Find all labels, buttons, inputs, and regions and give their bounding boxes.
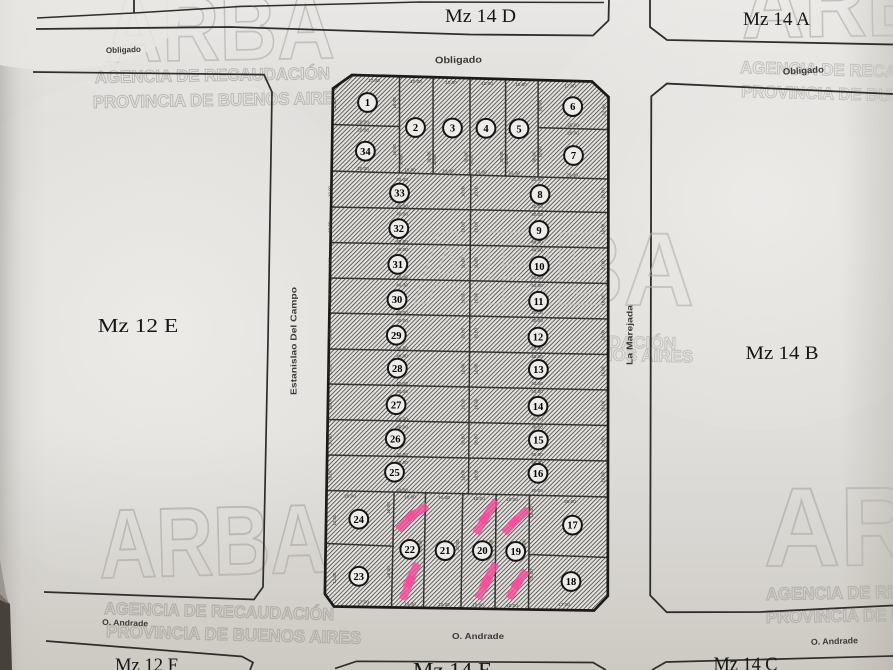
svg-text:17.00: 17.00	[564, 83, 576, 88]
svg-text:10.00: 10.00	[474, 398, 479, 410]
svg-text:10.00: 10.00	[461, 185, 466, 197]
svg-text:22.00: 22.00	[602, 104, 607, 116]
svg-text:10.00: 10.00	[472, 603, 484, 608]
svg-text:10.00: 10.00	[328, 363, 333, 375]
svg-text:33: 33	[394, 189, 405, 200]
svg-text:40.00: 40.00	[531, 389, 543, 394]
svg-text:40.00: 40.00	[396, 239, 408, 244]
svg-text:40.00: 40.00	[396, 204, 408, 209]
svg-text:40.00: 40.00	[396, 212, 408, 217]
svg-text:15.00: 15.00	[538, 146, 543, 158]
svg-text:10.00: 10.00	[461, 434, 466, 446]
svg-text:25.00: 25.00	[386, 566, 391, 578]
svg-text:10.00: 10.00	[601, 259, 606, 271]
svg-text:Obligado: Obligado	[106, 45, 141, 55]
svg-text:40.00: 40.00	[531, 417, 543, 422]
svg-text:20.00: 20.00	[344, 494, 356, 499]
svg-text:10.00: 10.00	[461, 398, 466, 410]
svg-text:20.00: 20.00	[357, 127, 369, 132]
svg-text:10.00: 10.00	[445, 80, 457, 85]
svg-text:1: 1	[365, 98, 370, 109]
svg-text:11: 11	[534, 297, 544, 308]
svg-text:15.00: 15.00	[386, 502, 391, 514]
svg-text:30.00: 30.00	[427, 151, 432, 163]
svg-text:10.00: 10.00	[328, 221, 333, 233]
svg-text:10.00: 10.00	[461, 327, 466, 339]
svg-text:40.00: 40.00	[531, 247, 543, 252]
svg-text:20.00: 20.00	[566, 172, 578, 177]
svg-text:30.00: 30.00	[532, 151, 537, 163]
svg-text:40.00: 40.00	[396, 346, 408, 351]
svg-text:10.00: 10.00	[508, 171, 520, 176]
svg-text:23: 23	[354, 572, 365, 583]
svg-text:ARBA: ARBA	[763, 462, 893, 590]
svg-text:40.00: 40.00	[531, 318, 543, 323]
svg-text:Mz 12 F: Mz 12 F	[115, 656, 178, 670]
svg-text:10.00: 10.00	[601, 365, 606, 377]
svg-text:20.00: 20.00	[567, 123, 579, 128]
svg-text:10.00: 10.00	[442, 169, 454, 174]
svg-text:17.00: 17.00	[368, 78, 380, 83]
svg-text:40.00: 40.00	[396, 354, 408, 359]
svg-text:10.00: 10.00	[328, 257, 333, 269]
svg-text:O. Andrade: O. Andrade	[452, 631, 504, 641]
svg-text:10.00: 10.00	[404, 601, 416, 606]
svg-text:13: 13	[533, 365, 544, 376]
svg-text:40.00: 40.00	[396, 416, 408, 421]
svg-text:5: 5	[516, 124, 521, 135]
svg-text:O. Andrade: O. Andrade	[102, 618, 149, 629]
svg-text:10.00: 10.00	[328, 327, 333, 339]
svg-text:10.00: 10.00	[601, 294, 606, 306]
svg-text:40.00: 40.00	[396, 177, 408, 182]
svg-text:40.00: 40.00	[396, 424, 408, 429]
svg-text:10.00: 10.00	[461, 292, 466, 304]
svg-text:9: 9	[536, 226, 541, 237]
svg-text:10.00: 10.00	[506, 603, 518, 608]
svg-text:10.00: 10.00	[601, 223, 606, 235]
svg-text:10.00: 10.00	[474, 257, 479, 269]
svg-text:30.00: 30.00	[504, 154, 509, 166]
svg-text:30.00: 30.00	[399, 154, 404, 166]
svg-text:Mz 14 D: Mz 14 D	[445, 7, 516, 27]
svg-text:10.00: 10.00	[515, 82, 527, 87]
svg-text:40.00: 40.00	[396, 381, 408, 386]
svg-text:10.00: 10.00	[474, 292, 479, 304]
svg-text:10.00: 10.00	[404, 494, 416, 499]
svg-text:10.00: 10.00	[410, 79, 422, 84]
svg-text:10.00: 10.00	[473, 496, 485, 501]
svg-text:40.00: 40.00	[531, 488, 543, 493]
svg-text:30: 30	[392, 295, 403, 306]
svg-text:21: 21	[440, 546, 451, 557]
svg-text:10.00: 10.00	[404, 168, 416, 173]
svg-text:29: 29	[391, 331, 402, 342]
svg-text:O. Andrade: O. Andrade	[811, 635, 859, 647]
svg-text:Mz 14 B: Mz 14 B	[746, 343, 819, 364]
svg-text:32: 32	[394, 224, 405, 235]
svg-text:22.00: 22.00	[332, 99, 337, 111]
svg-text:40.00: 40.00	[396, 318, 408, 323]
svg-text:20.00: 20.00	[567, 131, 579, 136]
svg-text:ARBA: ARBA	[98, 483, 329, 599]
svg-text:Mz 14 E: Mz 14 E	[413, 658, 492, 670]
svg-text:10.00: 10.00	[475, 170, 487, 175]
svg-text:40.00: 40.00	[531, 283, 543, 288]
svg-text:40.00: 40.00	[531, 381, 543, 386]
svg-text:12.00: 12.00	[332, 572, 337, 584]
svg-text:22: 22	[405, 545, 416, 556]
svg-text:10.00: 10.00	[461, 221, 466, 233]
svg-text:40.00: 40.00	[531, 212, 543, 217]
svg-text:10.00: 10.00	[438, 602, 450, 607]
svg-text:18: 18	[566, 577, 577, 588]
svg-text:15.00: 15.00	[392, 97, 397, 109]
svg-text:34: 34	[360, 147, 371, 158]
svg-text:4: 4	[483, 124, 489, 135]
svg-text:17: 17	[567, 521, 578, 532]
svg-text:15.00: 15.00	[538, 100, 543, 112]
svg-text:40.00: 40.00	[531, 452, 543, 457]
svg-text:25: 25	[389, 468, 400, 479]
svg-text:10.00: 10.00	[474, 434, 479, 446]
svg-text:25.00: 25.00	[529, 569, 534, 581]
svg-text:Estanislao Del Campo: Estanislao Del Campo	[289, 287, 299, 395]
svg-text:10.00: 10.00	[601, 471, 606, 483]
svg-text:13.00: 13.00	[332, 514, 337, 526]
svg-text:10.00: 10.00	[601, 400, 606, 412]
svg-text:10.00: 10.00	[328, 398, 333, 410]
svg-text:10.00: 10.00	[601, 329, 606, 341]
svg-text:10.00: 10.00	[461, 469, 466, 481]
svg-text:40.00: 40.00	[396, 275, 408, 280]
svg-text:30.00: 30.00	[455, 539, 460, 551]
svg-text:40.00: 40.00	[396, 452, 408, 457]
svg-text:2: 2	[413, 123, 418, 134]
svg-text:17.00: 17.00	[357, 600, 369, 605]
svg-text:20: 20	[477, 546, 488, 557]
svg-text:30.00: 30.00	[432, 154, 437, 166]
svg-text:40.00: 40.00	[396, 488, 408, 493]
svg-text:40.00: 40.00	[531, 177, 543, 182]
svg-text:15: 15	[533, 436, 544, 447]
svg-text:40.00: 40.00	[396, 310, 408, 315]
svg-text:7: 7	[571, 151, 576, 162]
svg-text:10.00: 10.00	[474, 363, 479, 375]
svg-text:40.00: 40.00	[531, 354, 543, 359]
svg-text:19: 19	[510, 547, 521, 558]
svg-text:10.00: 10.00	[328, 434, 333, 446]
svg-text:8: 8	[537, 190, 542, 201]
svg-text:10.00: 10.00	[601, 436, 606, 448]
svg-text:Mz 14 C: Mz 14 C	[714, 655, 778, 670]
svg-text:10.00: 10.00	[601, 187, 606, 199]
svg-text:40.00: 40.00	[396, 247, 408, 252]
svg-text:12: 12	[533, 333, 544, 344]
svg-text:10: 10	[534, 262, 545, 273]
svg-text:10.00: 10.00	[506, 497, 518, 502]
svg-text:15.00: 15.00	[392, 144, 397, 156]
svg-text:20.00: 20.00	[357, 166, 369, 171]
svg-text:31: 31	[393, 260, 404, 271]
svg-text:14: 14	[533, 402, 544, 413]
svg-text:40.00: 40.00	[531, 425, 543, 430]
svg-text:28: 28	[392, 364, 403, 375]
svg-text:27: 27	[391, 400, 402, 411]
svg-text:24: 24	[354, 515, 365, 526]
svg-text:10.00: 10.00	[481, 81, 493, 86]
svg-text:10.00: 10.00	[328, 185, 333, 197]
svg-text:16: 16	[533, 469, 544, 480]
svg-text:17.00: 17.00	[558, 602, 570, 607]
svg-text:30.00: 30.00	[469, 154, 474, 166]
svg-text:10.00: 10.00	[474, 469, 479, 481]
svg-text:10.00: 10.00	[461, 257, 466, 269]
svg-text:Mz 12 E: Mz 12 E	[98, 315, 179, 337]
svg-text:20.00: 20.00	[564, 499, 576, 504]
svg-text:10.00: 10.00	[438, 495, 450, 500]
svg-text:10.00: 10.00	[461, 363, 466, 375]
svg-text:20.00: 20.00	[357, 119, 369, 124]
svg-text:6: 6	[570, 102, 575, 113]
svg-text:10.00: 10.00	[474, 327, 479, 339]
svg-text:40.00: 40.00	[396, 283, 408, 288]
svg-text:Mz 14 A: Mz 14 A	[743, 10, 811, 30]
svg-text:Obligado: Obligado	[435, 55, 482, 67]
svg-text:26: 26	[390, 434, 401, 445]
svg-text:10.00: 10.00	[474, 221, 479, 233]
svg-text:ARBA: ARBA	[412, 210, 695, 328]
svg-text:10.00: 10.00	[328, 292, 333, 304]
svg-text:3: 3	[450, 124, 455, 135]
svg-text:10.00: 10.00	[328, 469, 333, 481]
svg-text:40.00: 40.00	[396, 389, 408, 394]
svg-text:10.00: 10.00	[474, 185, 479, 197]
